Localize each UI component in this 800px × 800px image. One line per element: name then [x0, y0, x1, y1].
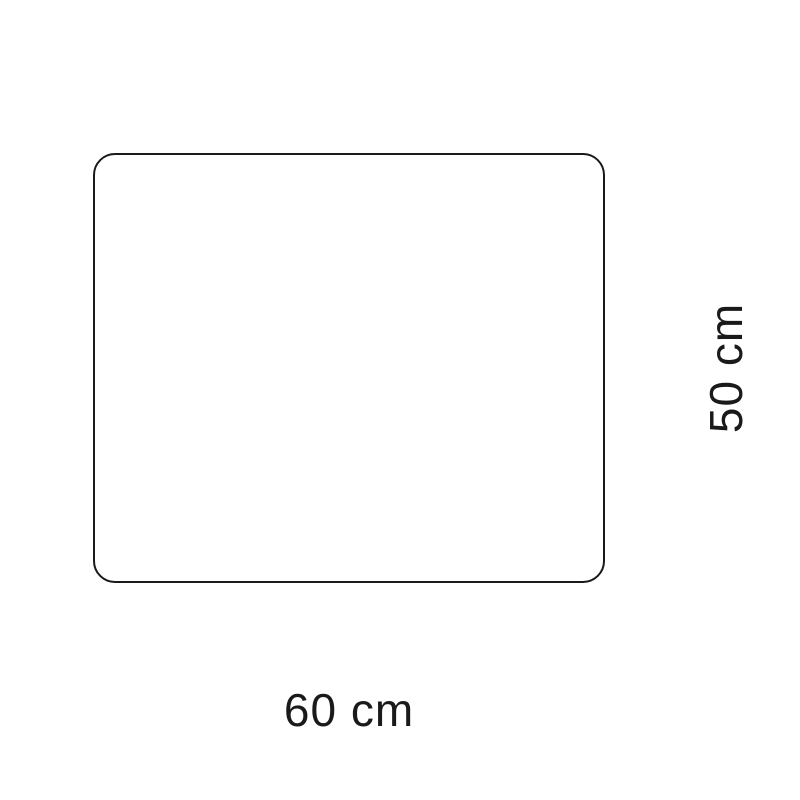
dimension-diagram: 60 cm 50 cm: [0, 0, 800, 800]
height-dimension-label: 50 cm: [703, 303, 749, 433]
measured-rectangle-outline: [93, 153, 605, 583]
width-dimension-label: 60 cm: [284, 687, 414, 733]
